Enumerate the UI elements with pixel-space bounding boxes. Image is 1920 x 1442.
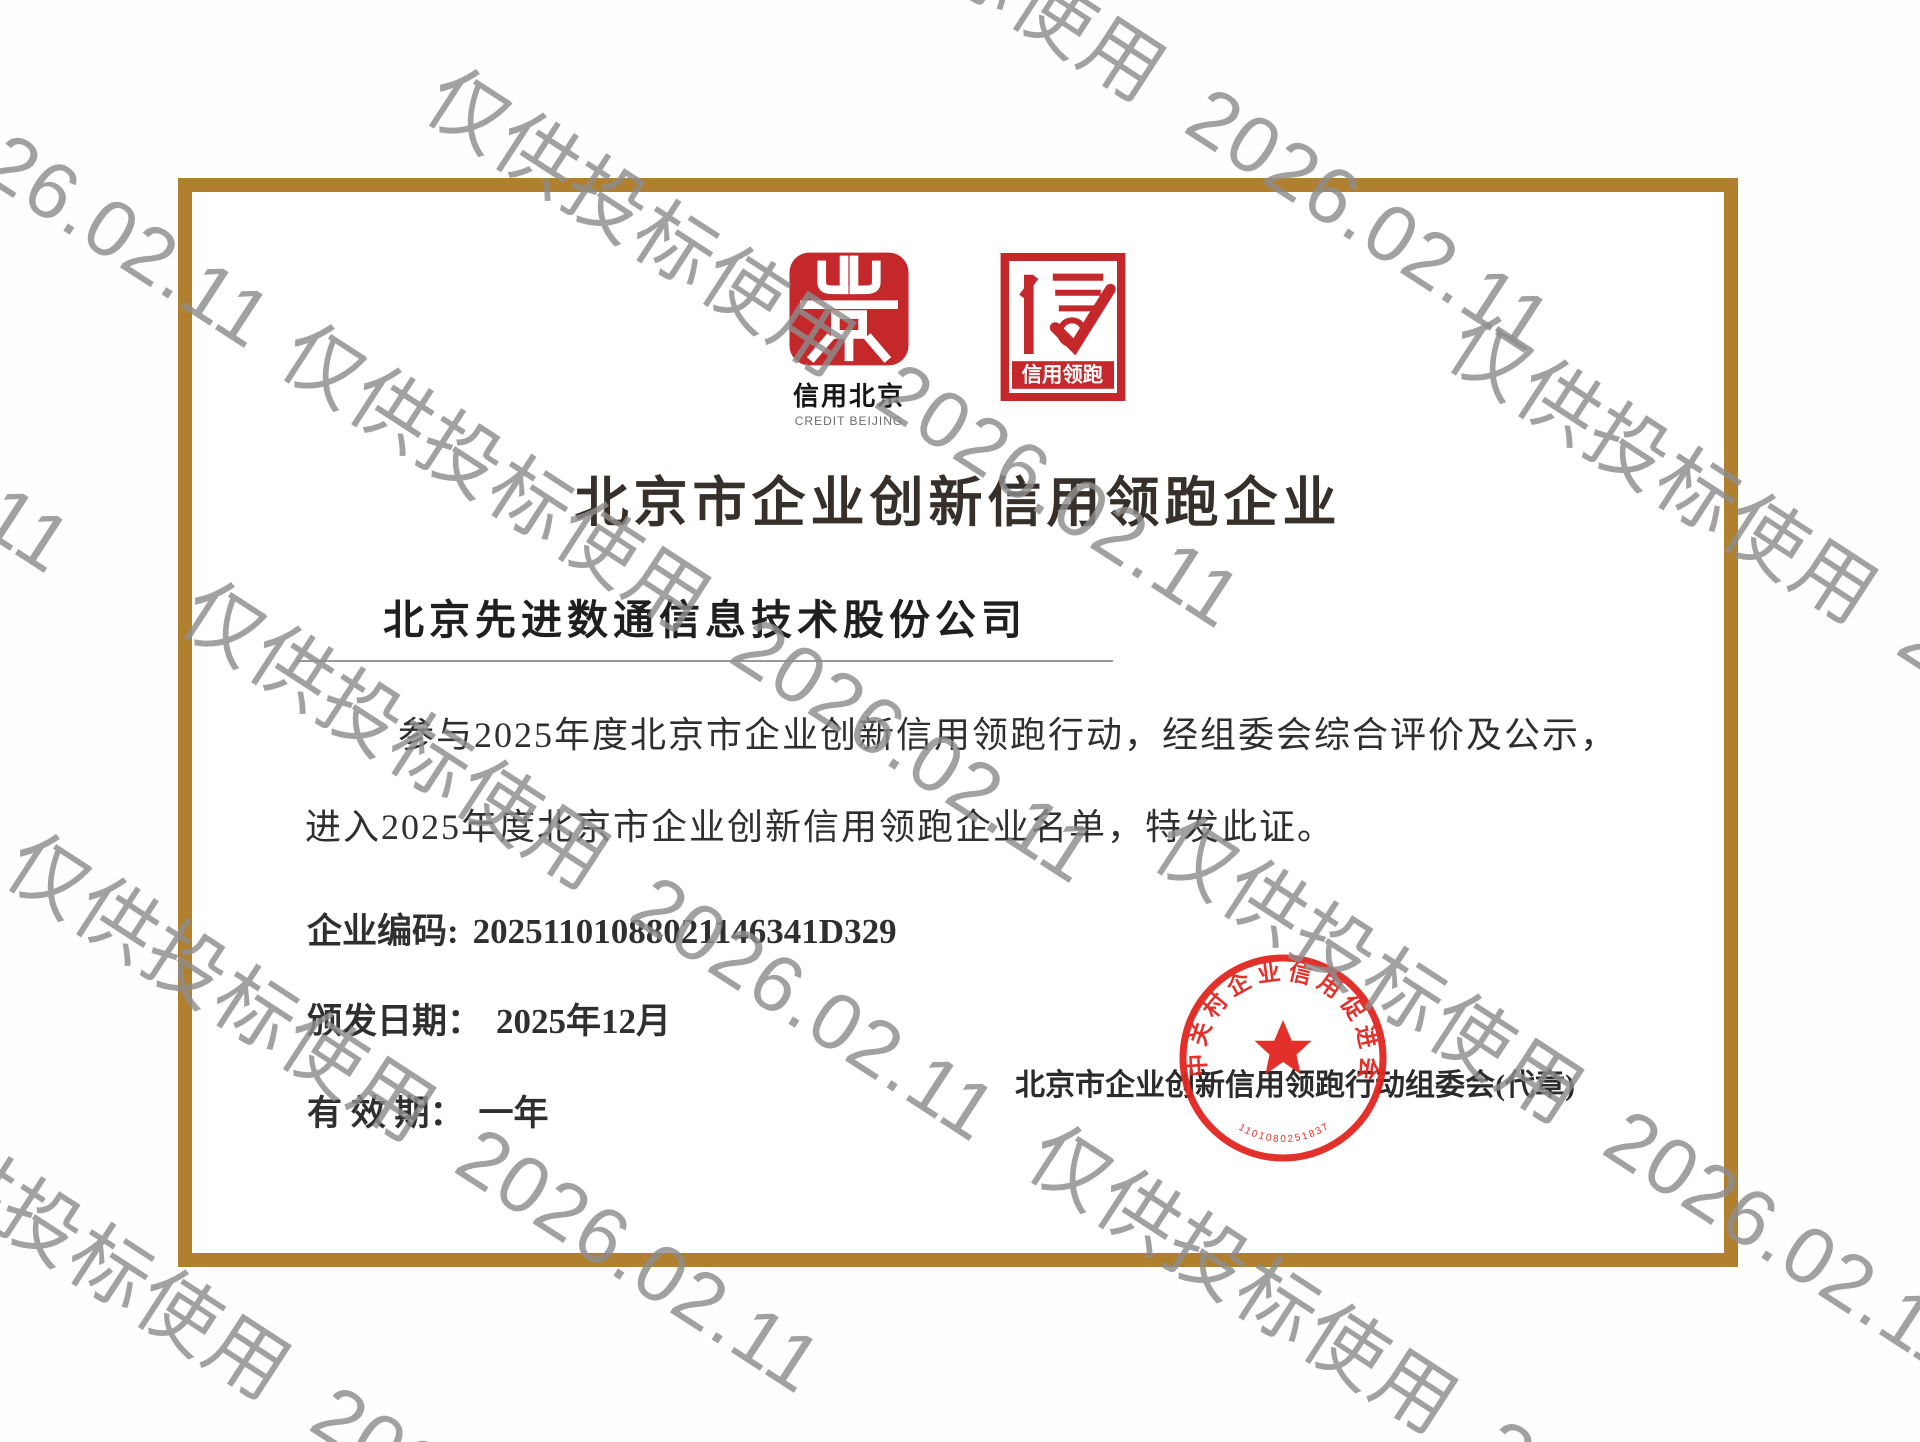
credit-beijing-label: 信用北京 (787, 376, 911, 413)
seal-star-icon (1255, 1020, 1312, 1074)
body-text-line-1: 参与2025年度北京市企业创新信用领跑行动，经组委会综合评价及公示， (398, 706, 1618, 758)
enterprise-code-value: 20251101088021146341D329 (473, 912, 897, 951)
validity-value: 一年 (479, 1094, 549, 1133)
company-name: 北京先进数通信息技术股份公司 (297, 586, 1113, 662)
credit-beijing-seal-icon (787, 250, 911, 368)
credit-beijing-sublabel: CREDIT BEIJING (787, 414, 911, 428)
credit-leader-stamp: 信用领跑 (1000, 253, 1126, 401)
enterprise-code-label: 企业编码: (307, 912, 459, 951)
certificate-title: 北京市企业创新信用领跑企业 (178, 458, 1738, 537)
enterprise-code-row: 企业编码:20251101088021146341D329 (307, 903, 897, 954)
credit-leader-band-label: 信用领跑 (1022, 363, 1104, 387)
validity-label: 有 效 期： (307, 1094, 465, 1133)
validity-row: 有 效 期：一年 (307, 1085, 549, 1136)
body-text-line-2: 进入2025年度北京市企业创新信用领跑企业名单，特发此证。 (305, 798, 1335, 850)
issue-date-label: 颁发日期： (307, 1002, 482, 1041)
watermark-text: 仅供投标使用 2026.02.11 (0, 0, 99, 596)
credit-beijing-logo: 信用北京 CREDIT BEIJING (787, 250, 911, 428)
official-red-seal: 中关村企业信用促进会 110108025183708 (1175, 950, 1391, 1166)
issue-date-row: 颁发日期：2025年12月 (307, 993, 671, 1044)
issue-date-value: 2025年12月 (496, 1002, 671, 1041)
credit-leader-stamp-icon: 信用领跑 (1000, 253, 1126, 401)
certificate-page: 信用北京 CREDIT BEIJING 信用领跑 北京市企业创新信用领跑企业 北… (0, 0, 1920, 1442)
